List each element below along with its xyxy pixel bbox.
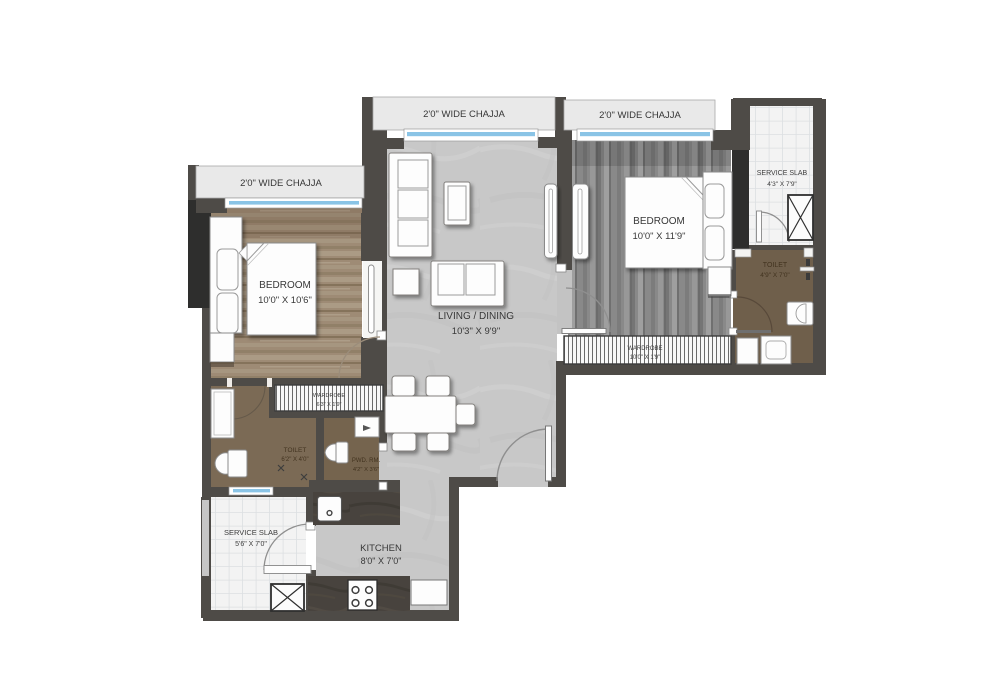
- svg-text:10'0" X 1'9": 10'0" X 1'9": [630, 355, 661, 361]
- svg-text:4'3" X 7'9": 4'3" X 7'9": [767, 181, 797, 188]
- svg-text:SERVICE SLAB: SERVICE SLAB: [224, 528, 278, 537]
- svg-text:4'9" X 7'0": 4'9" X 7'0": [760, 272, 790, 279]
- svg-text:2'0" WIDE CHAJJA: 2'0" WIDE CHAJJA: [240, 178, 322, 189]
- svg-text:5'6" X 7'0": 5'6" X 7'0": [235, 541, 267, 548]
- svg-text:BEDROOM: BEDROOM: [633, 216, 685, 227]
- svg-text:PWD. RM.: PWD. RM.: [352, 458, 381, 464]
- svg-text:WARDROBE: WARDROBE: [313, 393, 346, 399]
- svg-text:2'0" WIDE CHAJJA: 2'0" WIDE CHAJJA: [423, 109, 505, 120]
- svg-text:TOILET: TOILET: [284, 447, 307, 454]
- svg-text:LIVING / DINING: LIVING / DINING: [438, 311, 514, 322]
- svg-text:BEDROOM: BEDROOM: [259, 280, 311, 291]
- svg-text:TOILET: TOILET: [763, 262, 788, 269]
- svg-text:10'0" X 11'9": 10'0" X 11'9": [633, 231, 686, 242]
- svg-text:SERVICE SLAB: SERVICE SLAB: [757, 170, 808, 177]
- svg-text:6'2" X 4'0": 6'2" X 4'0": [281, 457, 308, 463]
- svg-text:KITCHEN: KITCHEN: [360, 543, 402, 554]
- svg-text:8'0" X 7'0": 8'0" X 7'0": [361, 556, 402, 566]
- svg-text:4'2" X 3'6": 4'2" X 3'6": [353, 467, 379, 473]
- svg-text:6'3" X 1'9": 6'3" X 1'9": [317, 402, 342, 408]
- svg-text:10'3" X 9'9": 10'3" X 9'9": [452, 326, 500, 337]
- svg-text:WARDROBE: WARDROBE: [627, 346, 662, 352]
- svg-text:2'0" WIDE CHAJJA: 2'0" WIDE CHAJJA: [599, 110, 681, 121]
- svg-text:10'0" X 10'6": 10'0" X 10'6": [258, 295, 312, 306]
